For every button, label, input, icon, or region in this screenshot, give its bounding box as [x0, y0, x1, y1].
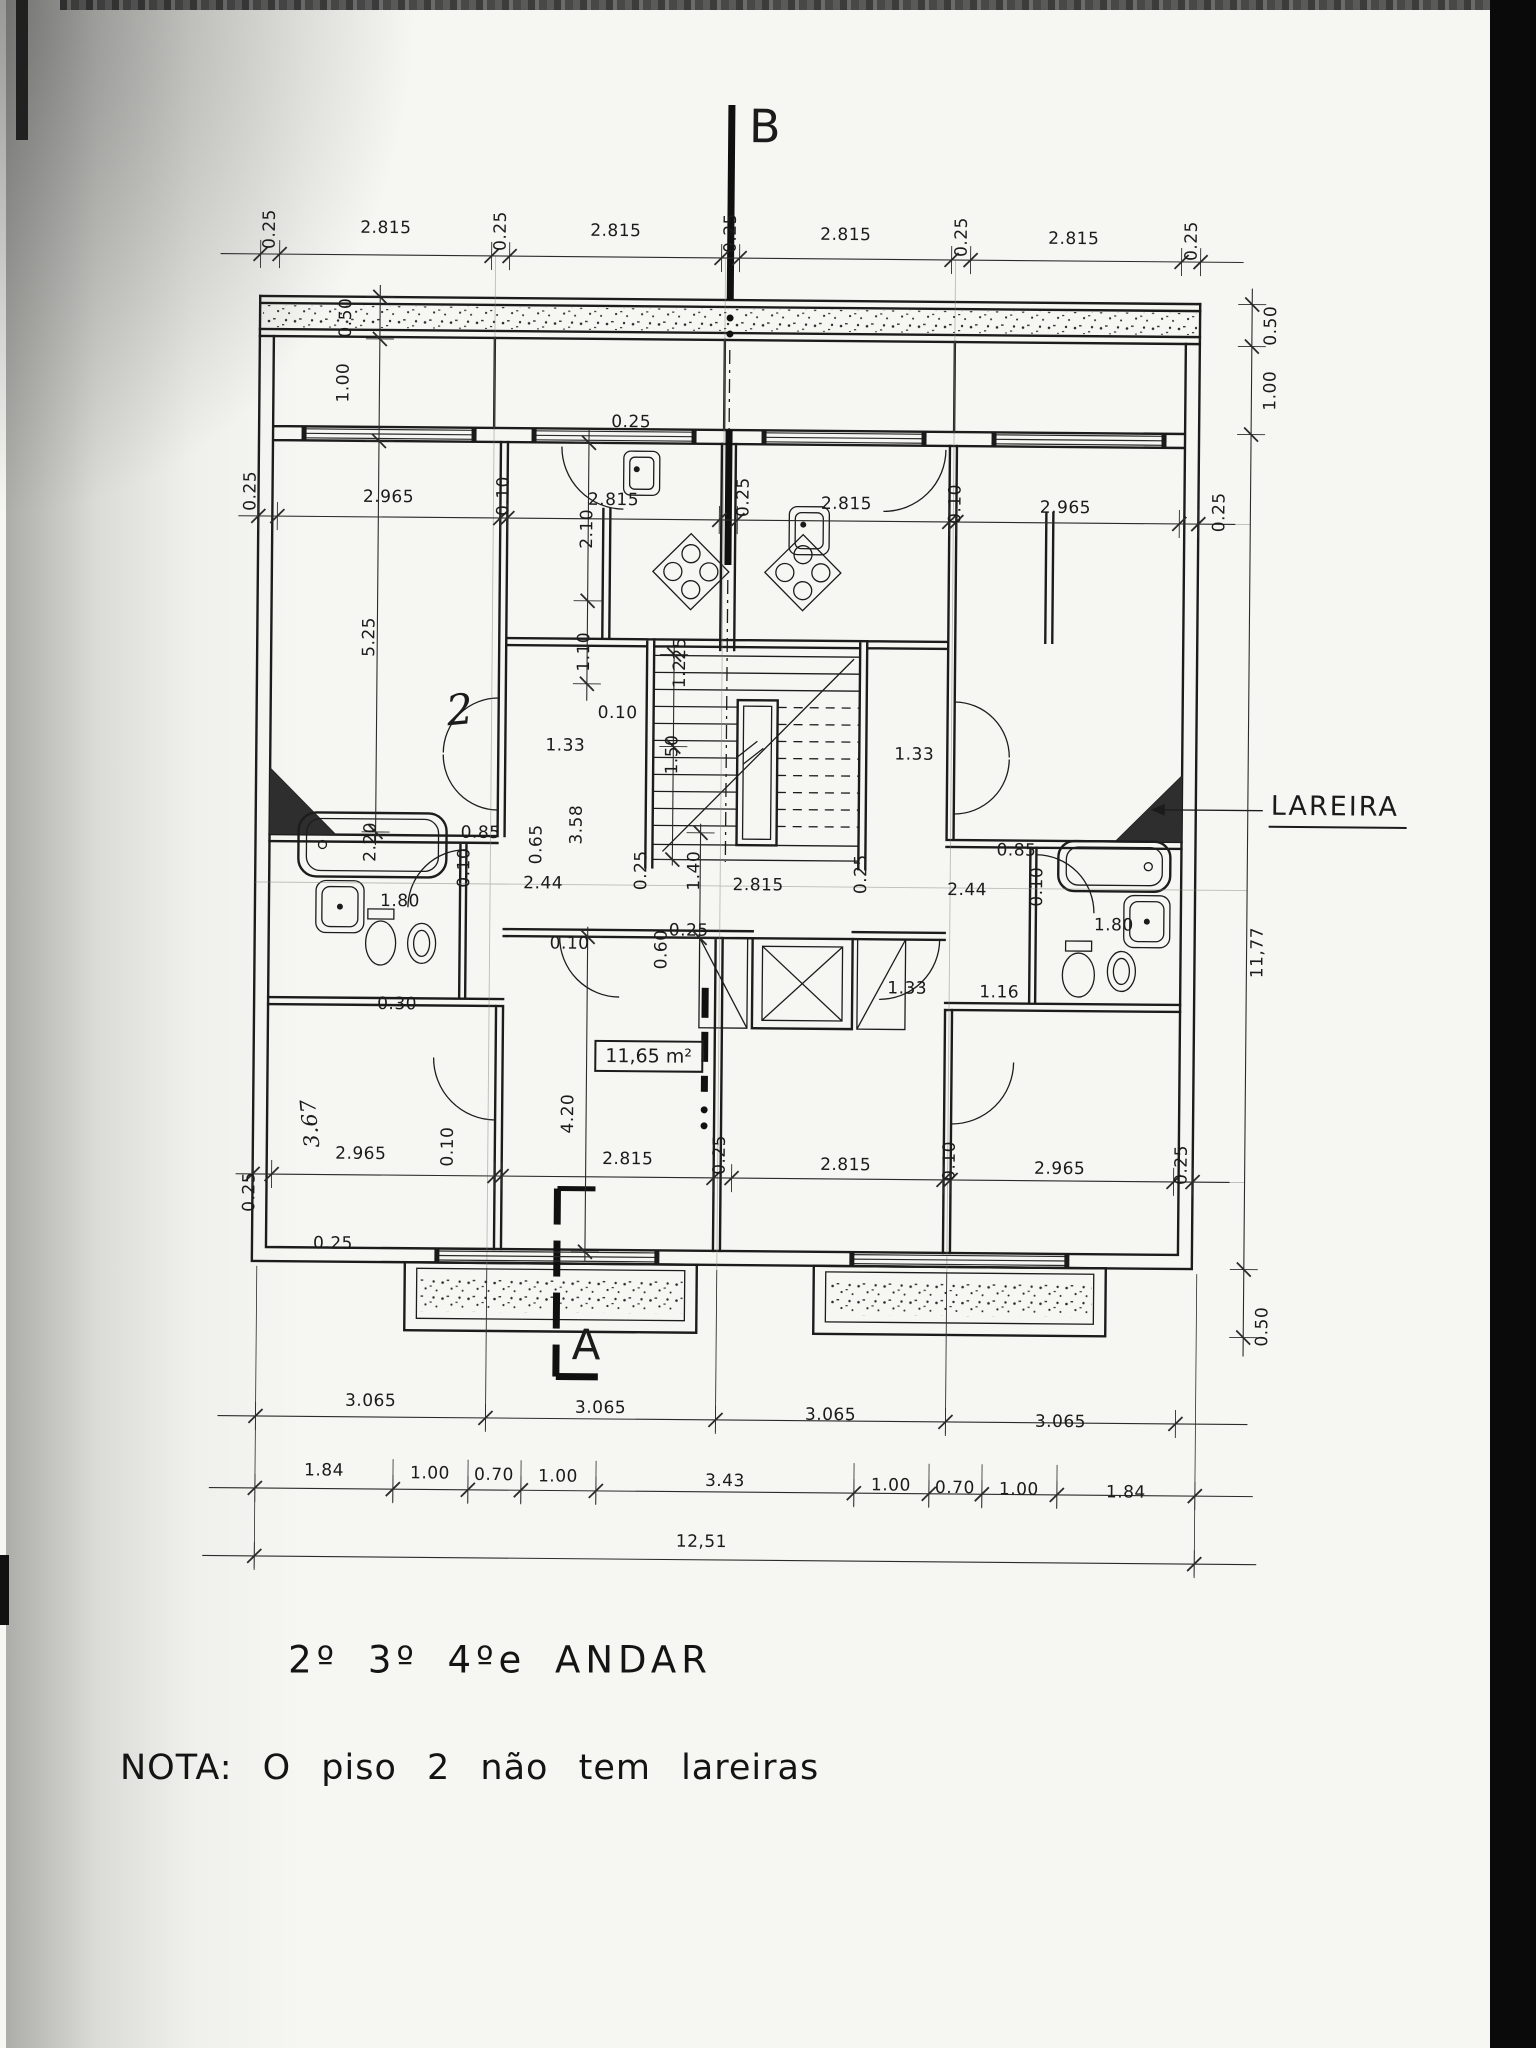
dim-label: 1.80	[380, 891, 420, 911]
dim-label: 11,77	[1247, 927, 1267, 978]
scanned-floor-plan-sheet: 0.252.8150.252.8150.252.8150.252.8150.25…	[0, 0, 1536, 2048]
dim-label: 2.965	[1040, 498, 1091, 518]
plan-title: 2º 3º 4ºe ANDAR	[288, 1639, 712, 1682]
dim-label: 2.815	[1048, 229, 1099, 249]
dim-label: 0.10	[493, 476, 513, 516]
bidet-right	[1107, 951, 1135, 991]
dim-label: 3.43	[705, 1471, 745, 1491]
plan-linework	[0, 0, 1536, 2048]
dim-label: 0.25	[491, 211, 511, 251]
dim-label: 1.00	[333, 363, 353, 403]
dim-label: 3.67	[296, 1098, 325, 1149]
dim-label: 1.00	[410, 1463, 450, 1483]
dim-label: 2.815	[820, 225, 871, 245]
dim-label: 0.85	[996, 840, 1036, 860]
dim-label: 2.44	[523, 873, 563, 893]
dim-label: 0.10	[598, 703, 638, 723]
dim-label: 0.70	[474, 1465, 514, 1485]
dim-label: 0.25	[260, 209, 280, 249]
dim-label: 1.84	[304, 1460, 344, 1480]
dim-label: 0.25	[721, 213, 741, 253]
bidet-left	[407, 923, 435, 963]
dim-label: 0.10	[454, 848, 474, 888]
dim-label: 4.20	[558, 1094, 578, 1134]
fireplace-corner-right	[1116, 775, 1183, 842]
dim-label: 3.065	[575, 1398, 626, 1418]
dim-label: 0.50	[1252, 1307, 1272, 1347]
dim-label: 2.965	[363, 487, 414, 507]
dim-label: 0.25	[851, 854, 871, 894]
dim-label: 0.25	[313, 1233, 353, 1253]
dim-label: 0.25	[733, 477, 753, 517]
dim-label: 1.10	[574, 632, 594, 672]
dim-label: 1.00	[871, 1475, 911, 1495]
dim-label: 0.25	[1209, 492, 1229, 532]
dim-label: 5.25	[359, 617, 379, 657]
dim-label: 3.065	[345, 1391, 396, 1411]
dim-label: 0.50	[1261, 306, 1281, 346]
dim-label: 1.50	[662, 735, 682, 775]
dim-label: 0.10	[550, 933, 590, 953]
dim-label: 2.815	[588, 490, 639, 510]
dim-label: 2.10	[577, 509, 597, 549]
dim-label: 1.00	[538, 1466, 578, 1486]
dim-label: 0.70	[935, 1478, 975, 1498]
dim-label: 1.84	[1106, 1482, 1146, 1502]
dim-label: 2.815	[732, 875, 783, 895]
dim-label: 1.16	[979, 982, 1019, 1002]
dim-label: 1.00	[1260, 371, 1280, 411]
dim-label: 1.225	[670, 637, 690, 688]
dim-label: 3.58	[566, 805, 586, 845]
fireplace-callout: LAREIRA	[1269, 791, 1407, 829]
section-marker-a: A	[572, 1320, 601, 1369]
dim-label: 0.25	[952, 217, 972, 257]
dim-label: 1.40	[684, 851, 704, 891]
dim-label: 2.815	[360, 218, 411, 238]
dim-label: 1.33	[894, 744, 934, 764]
dim-label: 3.065	[1035, 1412, 1086, 1432]
dim-label: 0.25	[240, 471, 260, 511]
handwritten-room-number: 2	[444, 684, 475, 735]
toilet-left	[365, 909, 395, 965]
dim-label: 2.44	[947, 880, 987, 900]
fireplace-corner-left	[270, 768, 337, 835]
dim-label: 2.965	[1034, 1159, 1085, 1179]
dim-label: 2.965	[335, 1144, 386, 1164]
dim-label: 0.25	[1172, 1145, 1192, 1185]
stove-left	[653, 533, 730, 610]
dim-label: 12,51	[676, 1532, 727, 1552]
dim-label: 0.10	[1027, 867, 1047, 907]
dim-label: 0.50	[336, 298, 356, 338]
dim-label: 2.815	[821, 494, 872, 514]
room-area-label: 11,65 m²	[594, 1040, 703, 1073]
elevator-shaft	[699, 938, 906, 1030]
dim-label: 0.10	[438, 1127, 458, 1167]
dim-label: 0.25	[611, 412, 651, 432]
dim-label: 0.60	[651, 929, 671, 969]
section-marker-b: B	[749, 99, 781, 153]
dim-label: 0.85	[461, 823, 501, 843]
dim-label: 0.25	[669, 921, 709, 941]
balcony-bottom	[404, 1262, 1106, 1336]
dim-label: 2.815	[590, 221, 641, 241]
plan-note: NOTA: O piso 2 não tem lareiras	[120, 1748, 819, 1788]
dim-label: 1.00	[999, 1479, 1039, 1499]
washbasin-left	[316, 880, 364, 932]
dim-label: 2.815	[602, 1149, 653, 1169]
dim-label: 0.25	[710, 1135, 730, 1175]
dim-label: 0.10	[945, 484, 965, 524]
kitchen-sink-left	[624, 451, 660, 495]
floor-plan-drawing: 0.252.8150.252.8150.252.8150.252.8150.25…	[0, 0, 1536, 2048]
dim-label: 0.25	[239, 1172, 259, 1212]
dim-label: 1.33	[545, 735, 585, 755]
dim-label: 2.20	[360, 822, 380, 862]
dim-label: 0.30	[377, 994, 417, 1014]
dim-label: 1.33	[887, 978, 927, 998]
dim-label: 2.815	[820, 1155, 871, 1175]
dim-label: 0.25	[631, 850, 651, 890]
dim-label: 0.65	[526, 824, 546, 864]
dim-label: 3.065	[805, 1405, 856, 1425]
toilet-right	[1062, 941, 1094, 997]
dim-label: 0.25	[1182, 221, 1202, 261]
dim-label: 1.80	[1094, 915, 1134, 935]
dim-label: 0.10	[940, 1141, 960, 1181]
